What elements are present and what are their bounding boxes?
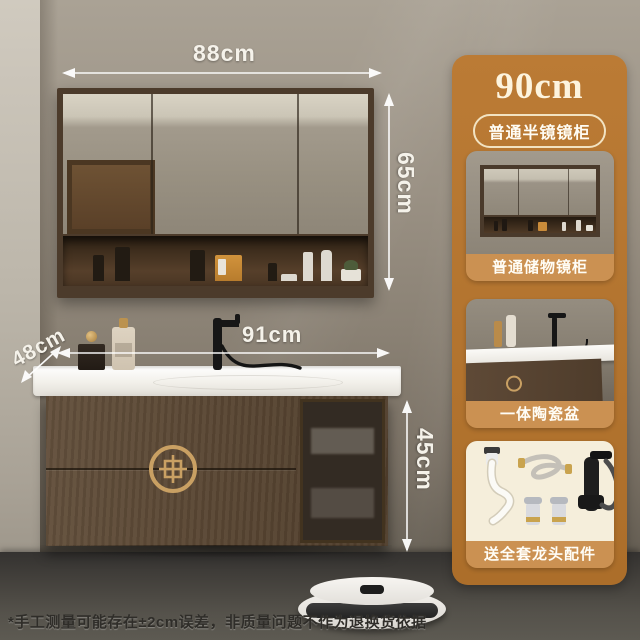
towel-inside	[311, 428, 374, 454]
shelf-tube	[303, 252, 313, 281]
shelf-dish	[281, 274, 297, 281]
mini-mirror	[484, 169, 596, 215]
mini-medallion	[506, 375, 523, 392]
lotion-pump	[119, 318, 128, 328]
vanity-cabinet	[46, 396, 388, 546]
shelf-plant-pot	[341, 269, 361, 281]
shelf-vase	[321, 250, 332, 281]
integrated-basin	[153, 375, 343, 390]
ceramic-countertop	[33, 366, 401, 396]
lotion-bottle	[112, 327, 135, 370]
shelf-box	[215, 255, 242, 281]
gold-medallion-handle	[146, 442, 200, 496]
product-thumb-mirror-cabinet	[466, 151, 614, 254]
mirror-door-seam	[297, 94, 299, 234]
product-thumb-faucet-kit	[466, 441, 614, 541]
mini-mirror-cabinet	[480, 165, 600, 237]
product-caption: 普通储物镜柜	[466, 254, 614, 281]
mirror-reflection-door	[67, 160, 155, 234]
dimension-label-mirror-width: 88cm	[193, 40, 256, 67]
fluted-glass-door	[300, 399, 385, 543]
shelf-towel	[218, 259, 226, 275]
dimension-label-mirror-height: 65cm	[392, 152, 419, 215]
shelf-bottle	[268, 263, 277, 281]
size-title: 90cm	[452, 65, 627, 108]
mini-shelf	[484, 217, 596, 233]
open-shelf	[63, 236, 368, 286]
mini-cabinet	[466, 359, 603, 401]
product-card-faucet-kit: 送全套龙头配件	[466, 441, 614, 568]
cabinet-shadow	[40, 545, 392, 557]
disclaimer-text: *手工测量可能存在±2cm误差，非质量问题不作为退换货依据	[8, 611, 438, 632]
mirror-door-seam	[151, 94, 153, 234]
perfume-cap	[86, 331, 97, 342]
product-card-mirror-cabinet: 普通储物镜柜	[466, 151, 614, 281]
wall-column	[0, 0, 40, 640]
promo-panel: 90cm 普通半镜镜柜	[452, 55, 627, 585]
lotion-label	[115, 343, 132, 357]
dimension-label-cabinet-height: 45cm	[411, 428, 438, 491]
mirror-cabinet	[57, 88, 374, 298]
shelf-plant	[344, 260, 358, 270]
robot-sensor	[360, 585, 384, 594]
perfume-box	[78, 344, 105, 370]
towel-inside	[311, 488, 374, 518]
product-caption: 送全套龙头配件	[466, 541, 614, 568]
accessories-illustration	[466, 441, 614, 541]
mini-bottle	[494, 321, 502, 347]
variant-badge: 普通半镜镜柜	[473, 114, 605, 148]
mirror-panels	[63, 94, 368, 234]
product-card-ceramic-basin: 一体陶瓷盆	[466, 299, 614, 428]
shelf-bottle	[93, 255, 104, 281]
mini-faucet-spout	[548, 313, 566, 318]
product-thumb-ceramic-basin	[466, 299, 614, 401]
product-caption: 一体陶瓷盆	[466, 401, 614, 428]
shelf-bottle	[115, 247, 130, 281]
product-image: 88cm 65cm 91cm 48cm 45cm *手工测量可能存在±2cm误差…	[0, 0, 640, 640]
dimension-label-counter-width: 91cm	[242, 322, 302, 348]
mini-bottle	[506, 315, 516, 347]
shelf-bottle	[190, 250, 205, 281]
